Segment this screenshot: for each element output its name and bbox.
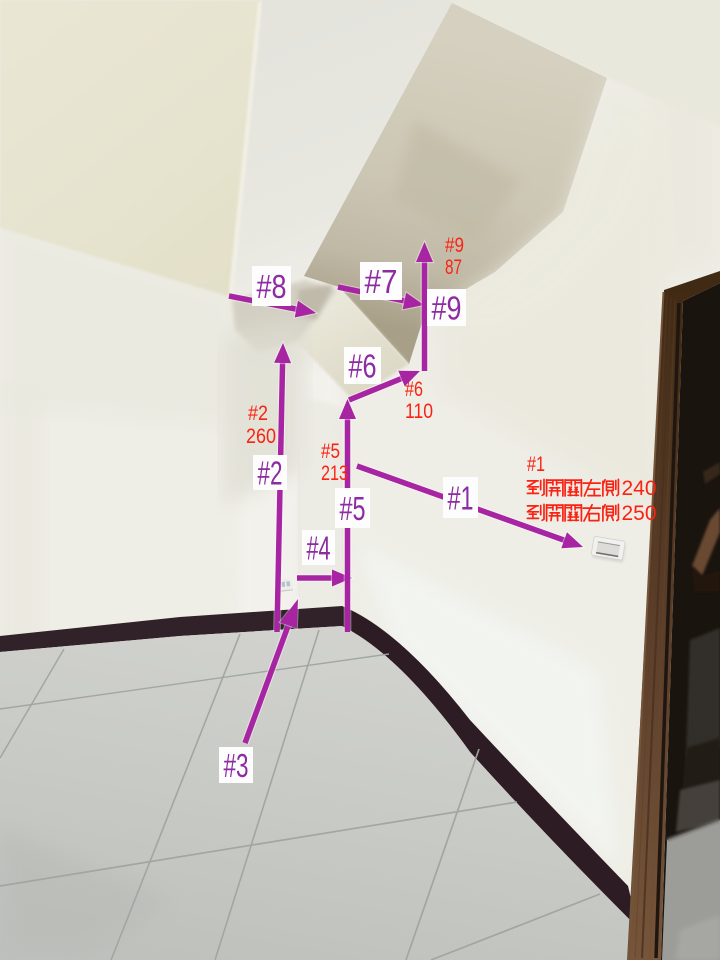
svg-text:#4: #4	[307, 529, 331, 566]
svg-text:#1: #1	[527, 453, 545, 476]
svg-text:#2: #2	[258, 454, 283, 491]
svg-text:250: 250	[622, 502, 657, 525]
svg-text:240: 240	[622, 477, 657, 500]
svg-text:87: 87	[445, 256, 462, 279]
svg-text:#5: #5	[321, 440, 340, 463]
svg-text:110: 110	[405, 400, 433, 423]
svg-text:#6: #6	[405, 378, 423, 401]
svg-text:#7: #7	[365, 263, 398, 300]
svg-text:260: 260	[246, 425, 276, 448]
svg-text:213: 213	[321, 462, 348, 485]
svg-text:#2: #2	[248, 402, 268, 425]
svg-text:#9: #9	[445, 234, 464, 257]
svg-text:#5: #5	[340, 490, 366, 527]
svg-text:#9: #9	[432, 289, 462, 326]
svg-text:#3: #3	[224, 747, 249, 784]
svg-text:#8: #8	[257, 268, 287, 305]
svg-text:#1: #1	[448, 479, 474, 516]
svg-text:#6: #6	[349, 347, 377, 384]
